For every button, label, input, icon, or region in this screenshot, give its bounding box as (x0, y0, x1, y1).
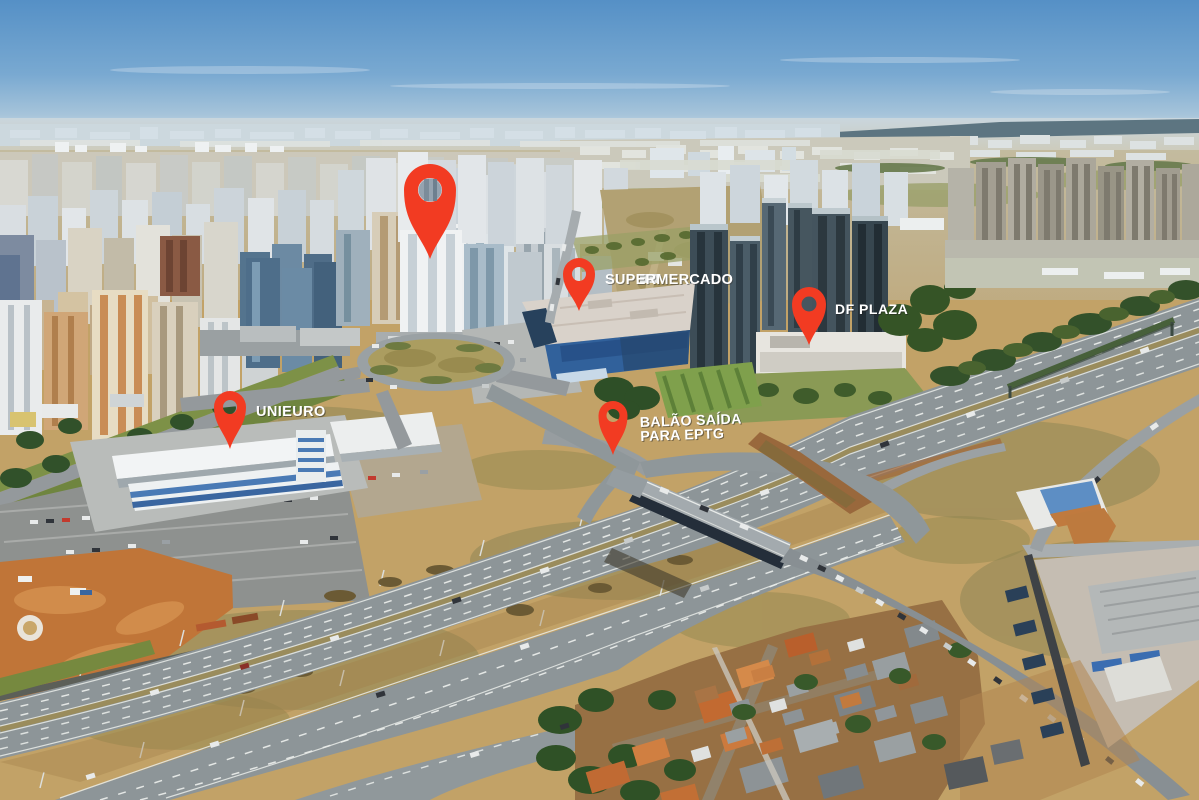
svg-text:SUPERMERCADO: SUPERMERCADO (605, 272, 733, 288)
svg-text:DF PLAZA: DF PLAZA (835, 301, 908, 317)
svg-text:UNIEURO: UNIEURO (256, 404, 326, 420)
svg-text:PARA EPTG: PARA EPTG (640, 426, 724, 445)
